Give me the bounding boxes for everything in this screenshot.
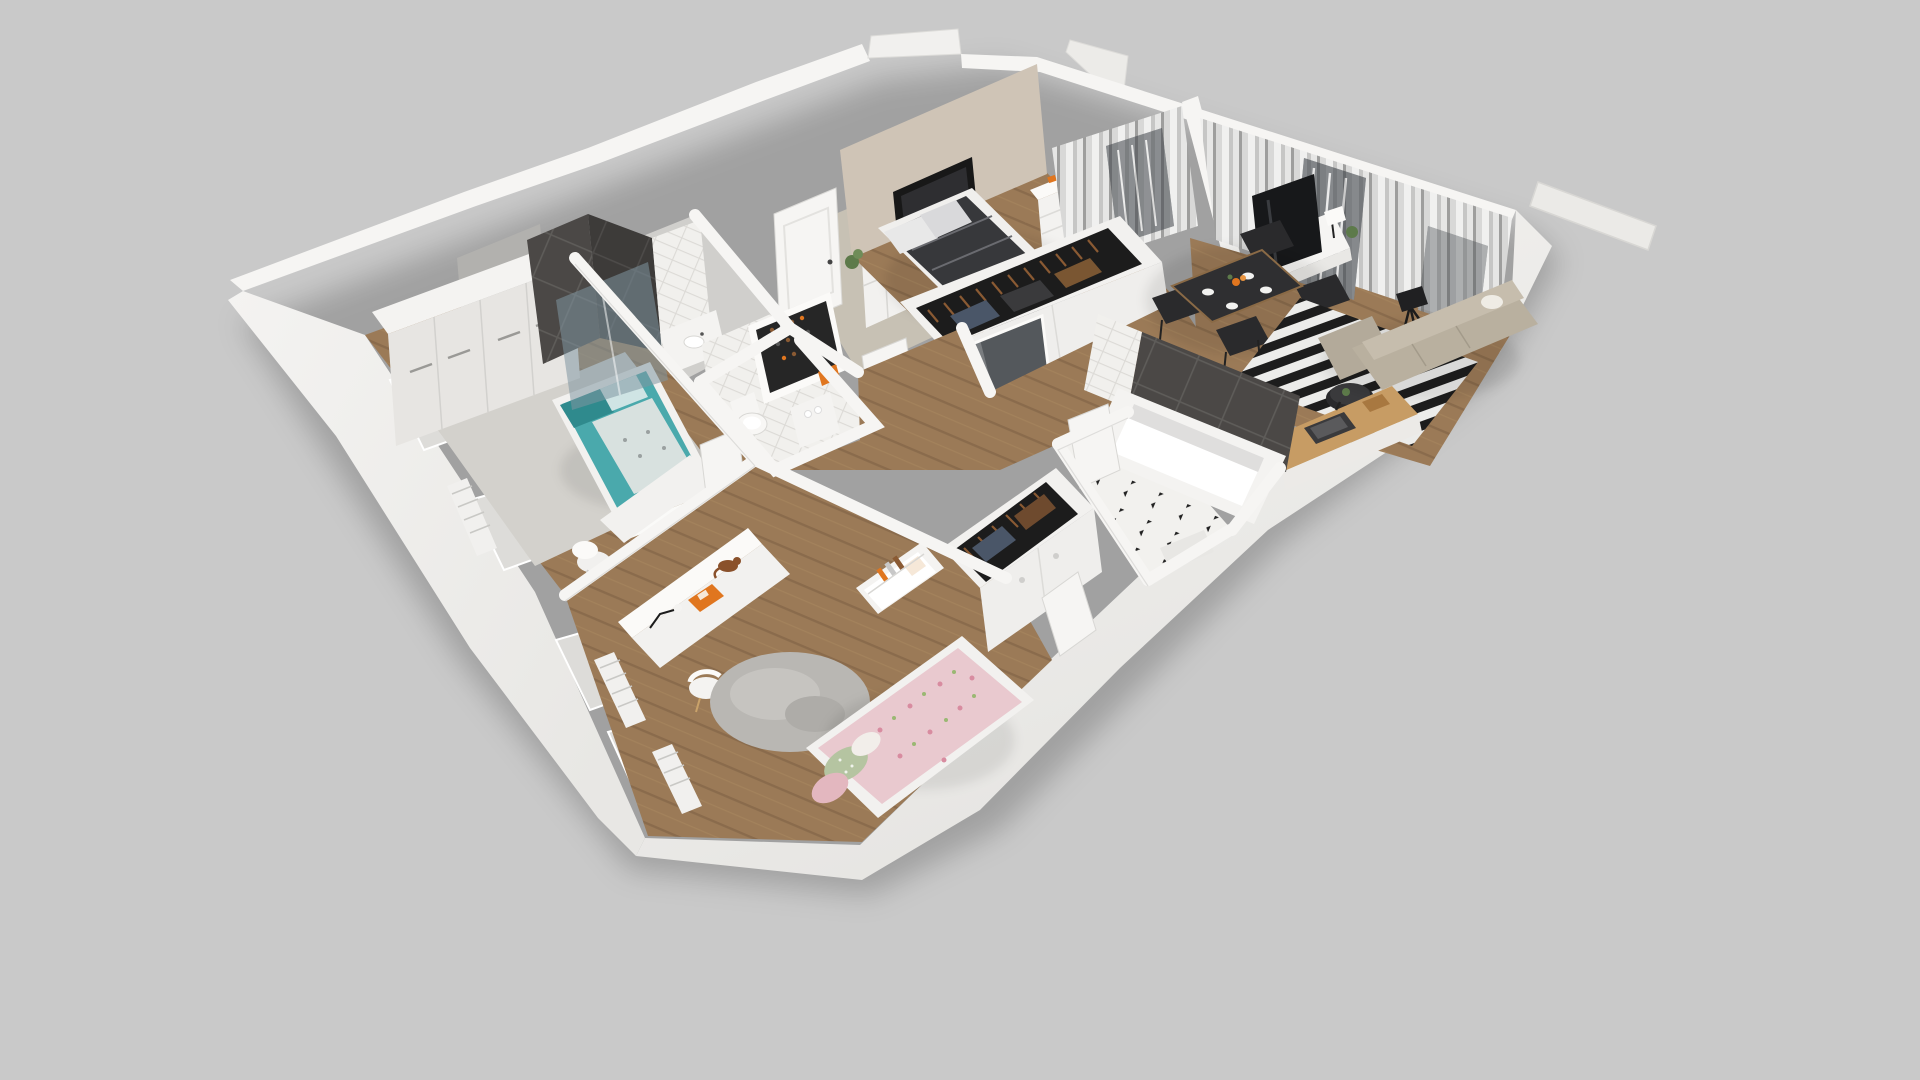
- floor-plan-stage: [0, 0, 1920, 1080]
- apartment-3d-render: [0, 0, 1920, 1080]
- door-handle: [828, 260, 833, 265]
- plant: [1346, 226, 1358, 238]
